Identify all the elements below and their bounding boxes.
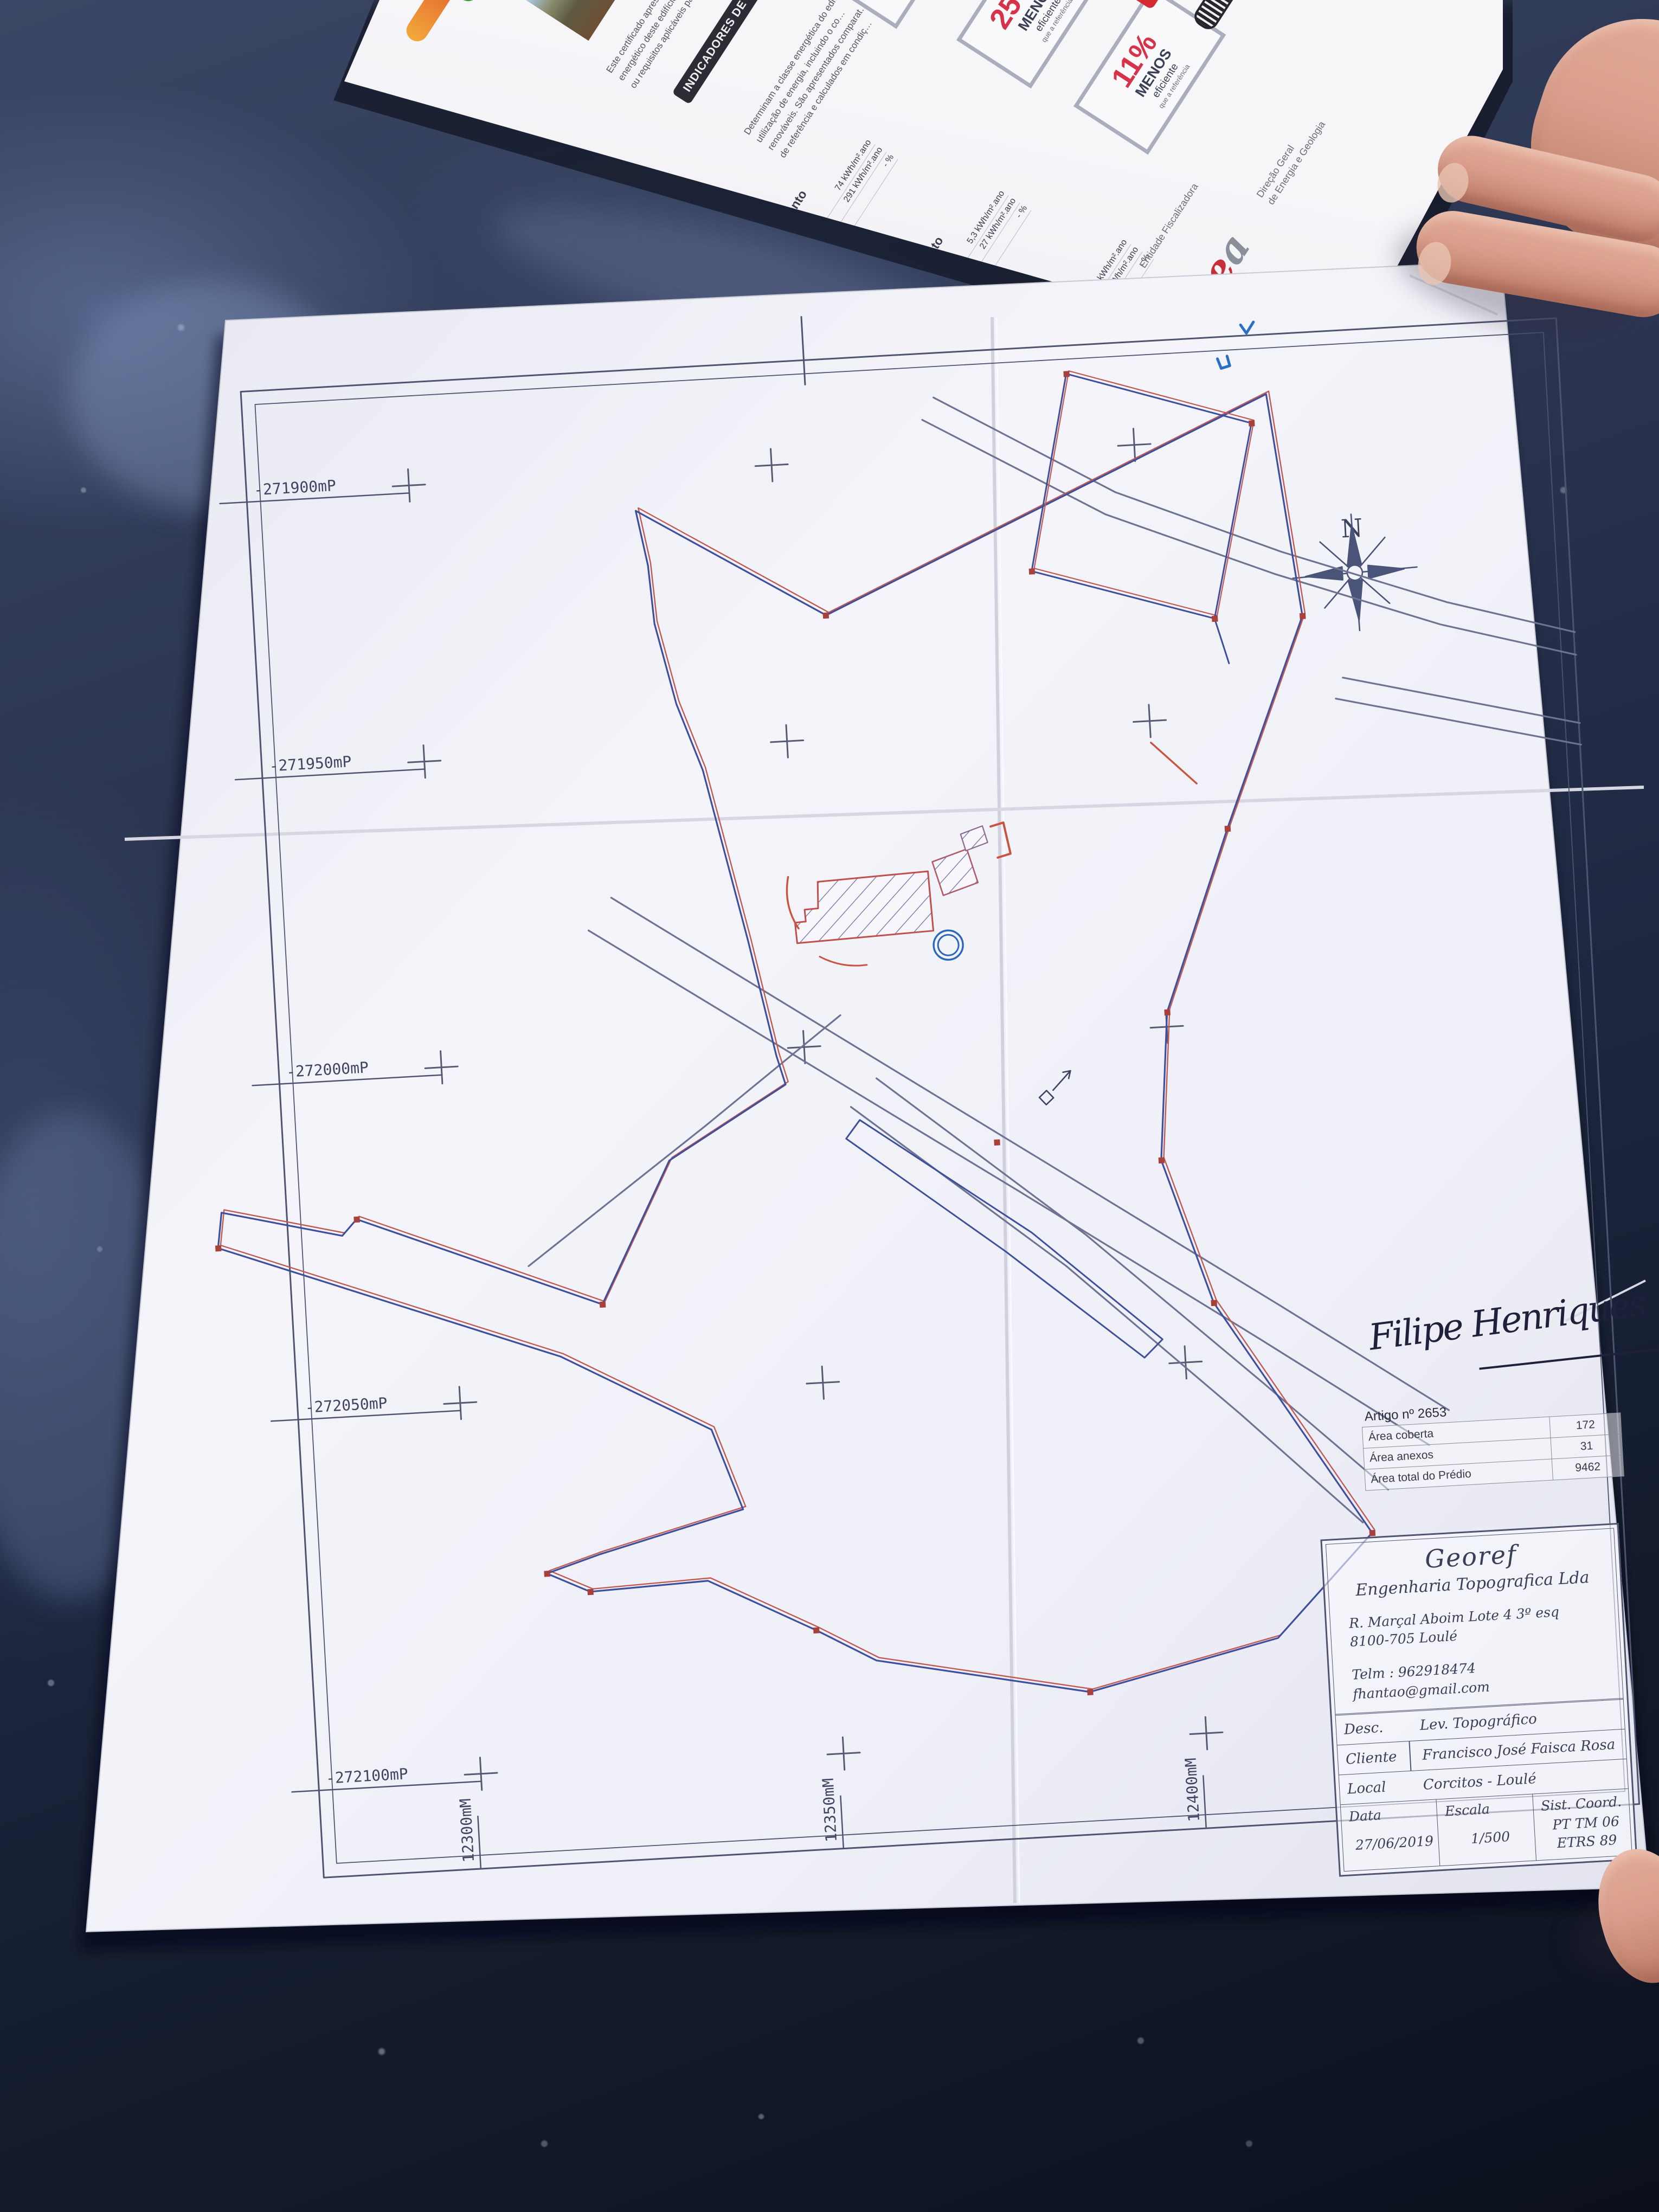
escala-cell: Escala 1/500 [1436, 1795, 1536, 1866]
data-cell: Data 27/06/2019 [1341, 1799, 1440, 1871]
company-block: Georef Engenharia Topografica Lda R. Mar… [1326, 1528, 1623, 1715]
paper-overlays: Filipe Henriques Artigo nº 2653 Área cob… [0, 0, 1659, 2212]
photo-scene: Este certificado apresenta a cla… energé… [0, 0, 1659, 2212]
sist-coord-cell: Sist. Coord. PT TM 06 ETRS 89 [1532, 1789, 1632, 1861]
title-block: Georef Engenharia Topografica Lda R. Mar… [1320, 1523, 1637, 1877]
signature-flourish [1479, 1346, 1659, 1370]
artigo-table: Artigo nº 2653 Área coberta 172 Área ane… [1361, 1395, 1624, 1490]
signature-handwriting: Filipe Henriques [1367, 1282, 1648, 1359]
